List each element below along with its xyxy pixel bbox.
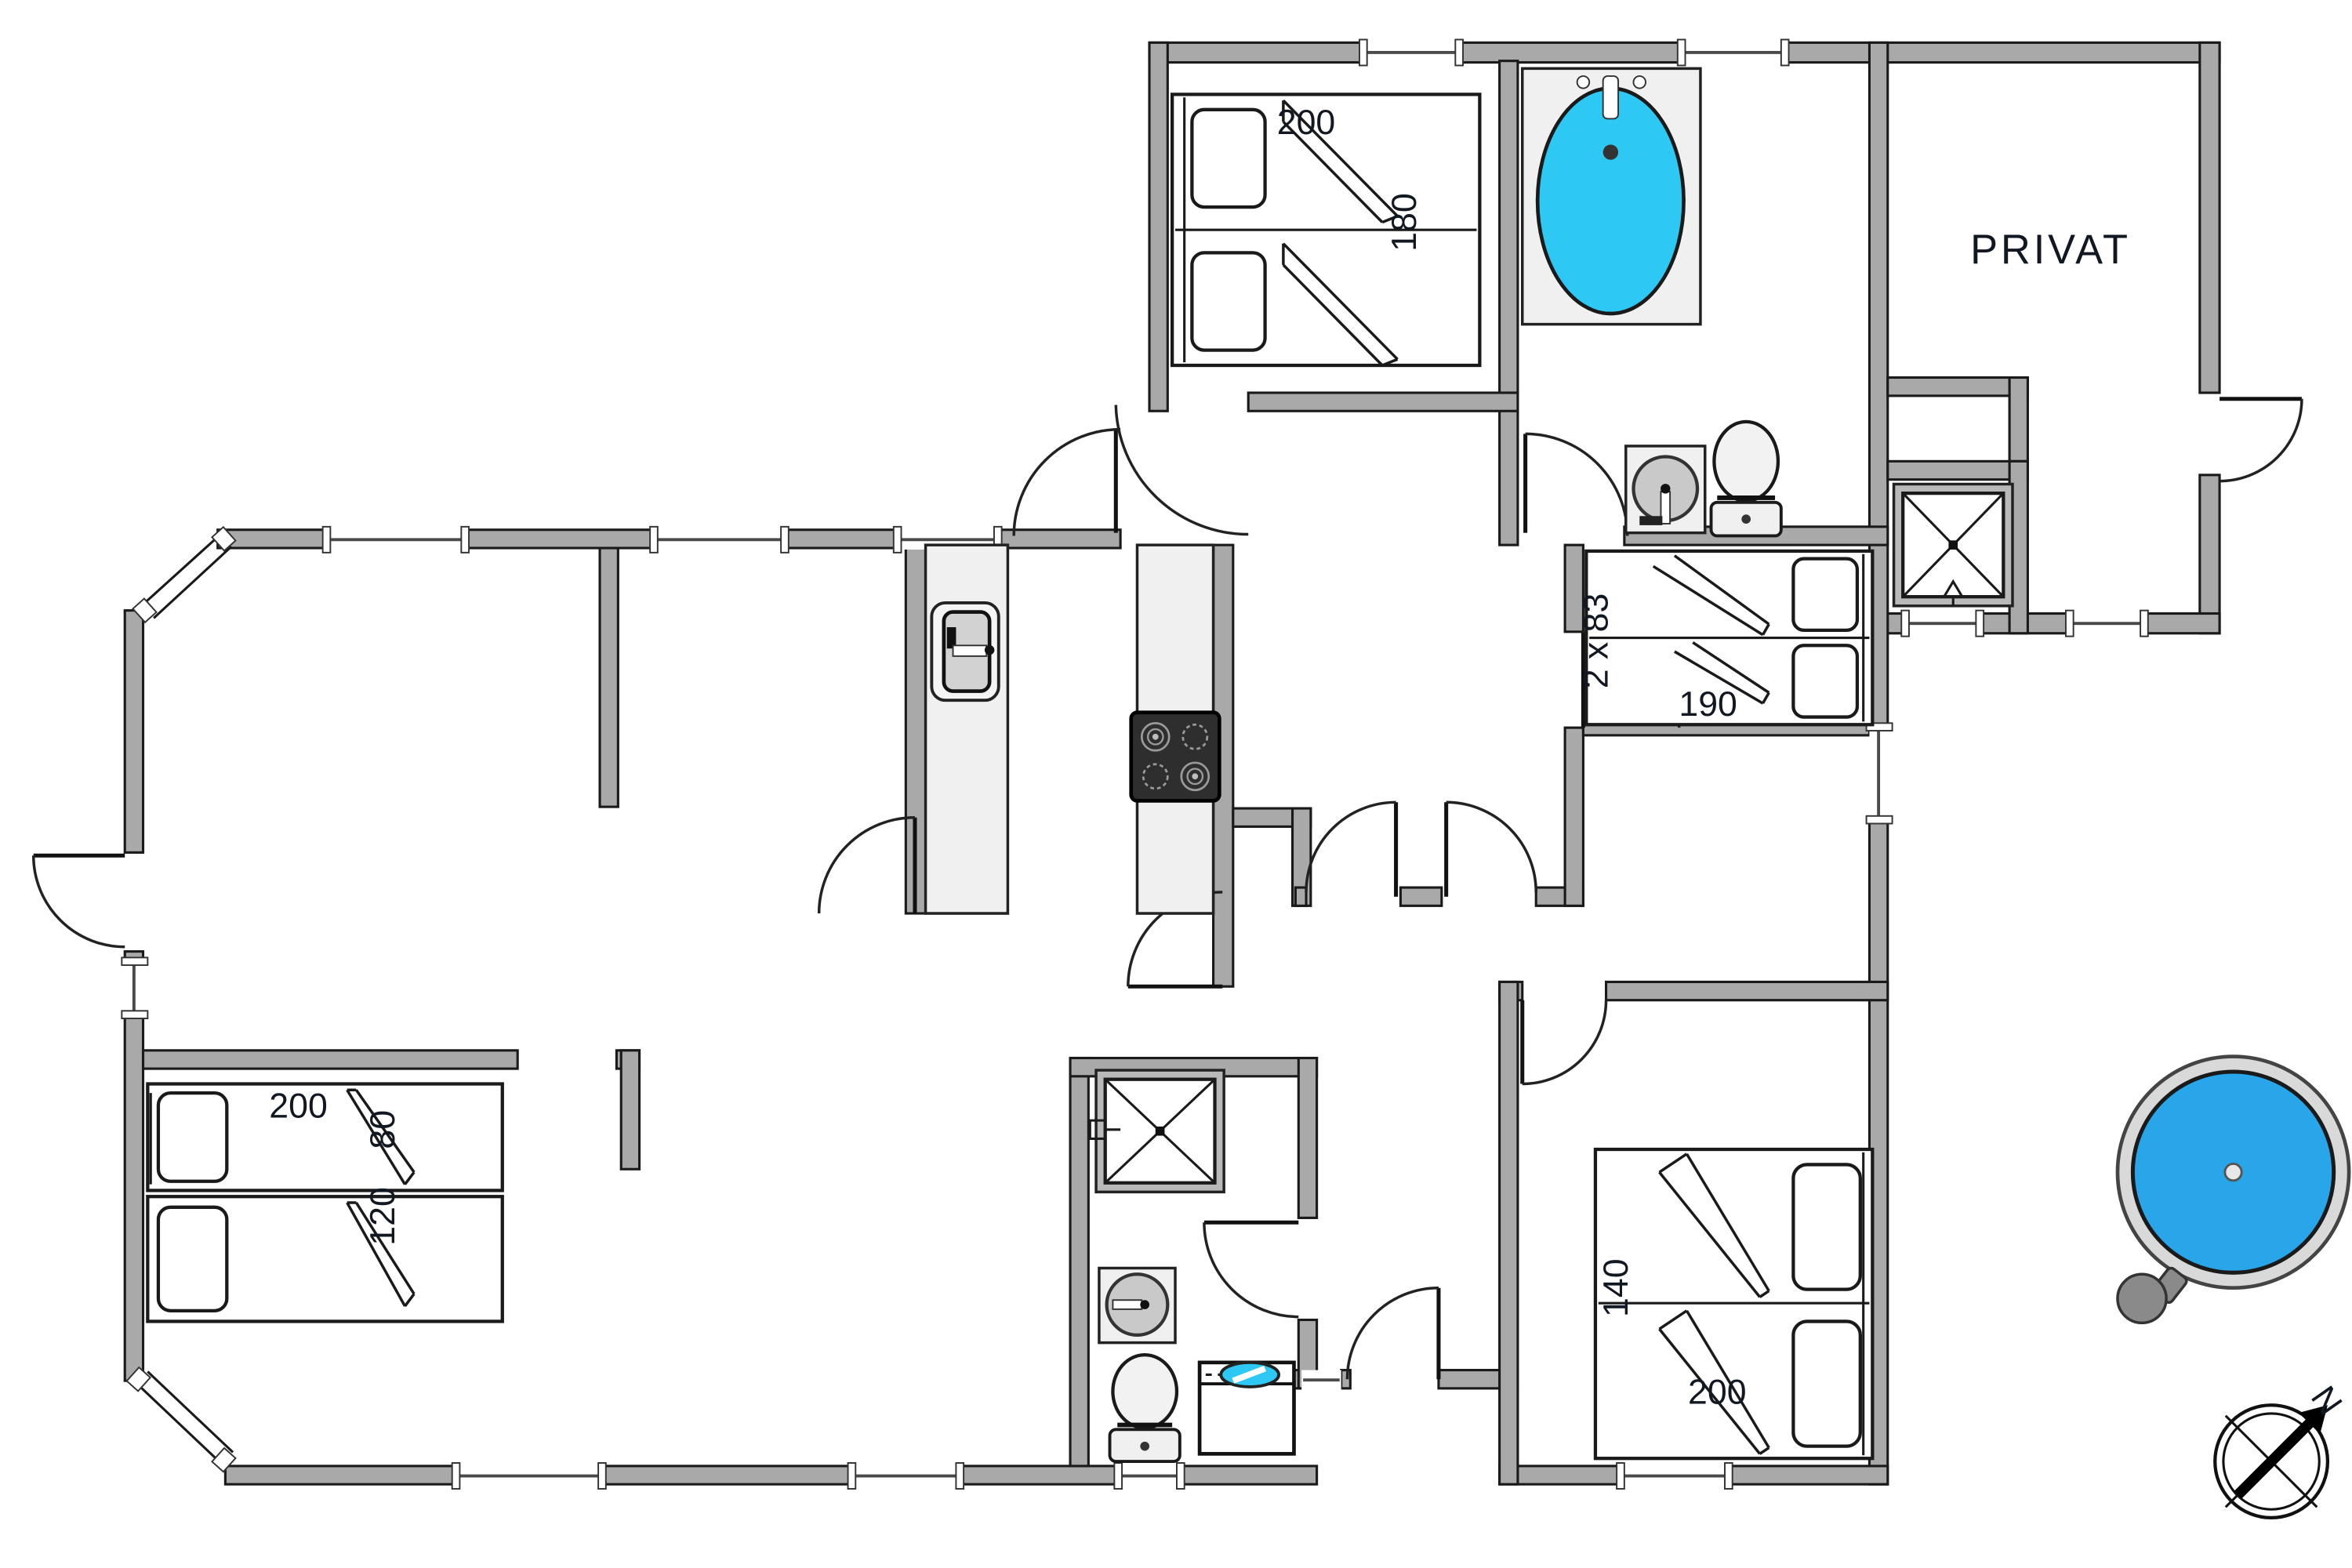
pillow [1793,559,1857,630]
door [1523,1000,1606,1084]
wall-segment [1458,42,1682,62]
wall-segment [1149,42,1167,411]
door [1526,434,1628,535]
stove-cooktop [1131,713,1220,801]
hot-tub [2118,1057,2349,1323]
middle-bathroom [1090,1070,1294,1461]
wall-segment [1500,61,1518,545]
wall-segment [225,1466,456,1484]
shower-room [1894,484,2013,605]
bed-width-label: 120 [364,1187,402,1246]
wall-segment [621,1051,639,1169]
wall-segment [1606,982,1888,1000]
door [1014,405,1248,536]
window [1359,39,1463,65]
wall-segment [2200,475,2220,633]
door [819,818,915,913]
wall-segment [1149,42,1364,62]
window [452,1463,606,1489]
kitchen-sink [931,603,998,700]
bay-window [132,527,235,622]
door [1446,802,1537,896]
window [1867,723,1893,823]
window [1617,1463,1733,1489]
wall-segment [1295,887,1306,906]
kitchen [926,545,1220,913]
pillow [158,1207,227,1311]
north-arrow [2238,1422,2310,1495]
window [1901,611,1984,637]
wall-segment [125,1014,143,1381]
window [1678,39,1789,65]
toilet [1110,1355,1180,1461]
right-bedroom: 140 200 [1595,1149,1872,1458]
side-door [34,855,125,947]
bed-width-label: 80 [364,1110,402,1149]
window [1114,1463,1184,1489]
bed-length-label: 200 [1277,103,1336,142]
window [1301,1370,1341,1390]
bed-length-label: 190 [1679,685,1737,724]
mattress-label: 2 x 83 [1577,593,1616,689]
wall-segment [1248,393,1518,411]
privat-room: PRIVAT [1970,227,2131,273]
pillow [1793,1321,1860,1446]
compass-rose: N [2215,1380,2349,1518]
wall-segment [784,530,898,548]
wall-segment [959,1466,1119,1484]
pillow [158,1093,227,1181]
wall-segment [1341,1370,1351,1388]
entrance-door [2220,399,2302,481]
wall-segment [1784,42,2220,62]
door [1306,802,1396,896]
washbasin [1626,446,1705,533]
bed-width-label: 180 [1385,193,1424,252]
bed-width-label: 140 [1597,1258,1635,1317]
faucet-icon [953,645,987,656]
hot-tub-heater [2118,1274,2166,1323]
double-bed [1595,1149,1872,1458]
window [848,1463,964,1489]
pillow [1793,1164,1860,1289]
window [323,527,469,553]
wall-segment [1888,461,2028,479]
wall-segment [2200,42,2220,393]
window [2066,611,2148,637]
faucet-icon [1603,76,1618,118]
washbasin [1099,1268,1175,1342]
floor-plan: 200 180 PRIVAT [0,0,2352,1568]
wall-segment [1400,887,1441,906]
pillow [1793,645,1857,717]
washing-machine [1200,1363,1294,1454]
pillow [1192,252,1265,350]
pillow [1192,110,1265,207]
window [122,957,147,1018]
top-bathroom [1523,68,1781,535]
wall-segment [1565,728,1583,906]
wall-segment [1298,1058,1316,1218]
top-bedroom: 200 180 [1172,94,1479,365]
wall-segment [601,1466,852,1484]
wall-segment [1728,1466,1888,1484]
bay-window [127,1367,236,1472]
wall-segment [600,548,618,807]
wall-segment [2143,614,2220,633]
shower [1894,484,2013,605]
toilet [1711,422,1781,536]
single-bed [147,1196,502,1321]
wall-segment [125,611,143,853]
wall-segment [464,530,655,548]
wall-segment [143,1051,518,1069]
back-door [1347,1288,1439,1380]
wall-segment [1888,378,2028,396]
window [650,527,789,553]
middle-bedroom: 2 x 83 190 [1577,551,1873,724]
room-label: PRIVAT [1970,227,2131,273]
door [1204,1222,1298,1316]
bed-length-label: 200 [269,1087,328,1125]
faucet-icon [1112,1300,1142,1309]
wall-segment [1500,982,1518,1484]
bed-length-label: 200 [1688,1373,1747,1411]
wall-segment [1180,1466,1317,1484]
left-bedroom: 200 80 120 [147,1084,502,1322]
bathtub [1523,68,1700,324]
shower [1090,1070,1224,1192]
wall-segment [1070,1058,1088,1466]
wall-segment [997,530,1120,548]
kitchen-counter [926,545,1008,913]
